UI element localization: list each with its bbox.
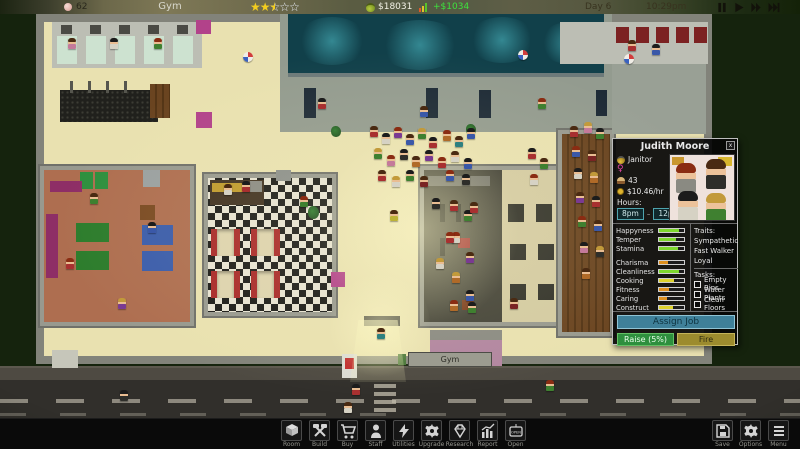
star-icon: ★ — [260, 0, 270, 14]
person-sprite[interactable] — [678, 191, 698, 221]
toolbar-button-label: Buy — [342, 441, 353, 449]
person-sprite[interactable] — [412, 156, 420, 167]
fire-button[interactable]: Fire — [677, 333, 735, 346]
beach-ball — [624, 54, 634, 64]
toolbar-button-label: Utilities — [392, 441, 415, 449]
stall-floor — [86, 36, 106, 64]
stat-label: Fitness — [616, 286, 658, 294]
wood-room — [562, 134, 610, 332]
stat-label: Construct — [616, 304, 658, 312]
menu-icon — [768, 420, 789, 441]
person-sprite[interactable] — [530, 174, 538, 185]
room-button[interactable]: Room — [279, 420, 304, 449]
toolbar-button-label: Report — [478, 441, 498, 449]
traits-label: Traits: — [694, 226, 738, 236]
person-sprite[interactable] — [224, 184, 232, 195]
menu-button[interactable]: Menu — [766, 420, 791, 449]
options-button[interactable]: Options — [738, 420, 763, 449]
person-sprite[interactable] — [148, 222, 156, 233]
person-sprite[interactable] — [510, 298, 518, 309]
locker-bench — [150, 84, 170, 118]
room-icon — [281, 420, 302, 441]
stat-row: Stamina — [616, 244, 688, 253]
counter — [46, 214, 58, 278]
day-counter: Day 6 — [585, 1, 611, 13]
road-lane-marking — [0, 413, 800, 416]
toolbar-button-label: Menu — [770, 441, 786, 449]
person-sprite[interactable] — [377, 328, 385, 339]
person-sprite[interactable] — [676, 163, 696, 193]
sidewalk — [0, 366, 800, 380]
person-sprite[interactable] — [596, 246, 604, 257]
person-sprite[interactable] — [443, 130, 451, 141]
toolbar-button-label: Room — [283, 441, 300, 449]
billboard-art — [345, 358, 354, 369]
person-sprite[interactable] — [466, 290, 474, 301]
person-sprite[interactable] — [652, 44, 660, 55]
options-icon — [740, 420, 761, 441]
build-icon — [309, 420, 330, 441]
stall-floor — [173, 36, 193, 64]
person-sprite[interactable] — [118, 298, 126, 309]
deck-bench — [479, 90, 491, 118]
games-room — [44, 170, 190, 322]
report-button[interactable]: Report — [475, 420, 500, 449]
person-sprite[interactable] — [596, 128, 604, 139]
upgrade-button[interactable]: Upgrade — [419, 420, 444, 449]
person-sprite[interactable] — [420, 176, 428, 187]
stat-row: Caring — [616, 294, 688, 303]
stat-row: Cooking — [616, 276, 688, 285]
side-table — [140, 205, 155, 220]
pause-button[interactable] — [716, 2, 728, 13]
janitor-icon — [617, 156, 625, 164]
bench-blue — [142, 225, 173, 245]
stat-row: Cleanliness — [616, 267, 688, 276]
toolbar-button-label: Build — [312, 441, 327, 449]
toolbar-button-label: Staff — [369, 441, 383, 449]
person-sprite[interactable] — [370, 126, 378, 137]
person-sprite[interactable] — [584, 122, 592, 133]
person-sprite[interactable] — [120, 390, 128, 401]
utilities-button[interactable]: Utilities — [391, 420, 416, 449]
person-sprite[interactable] — [446, 170, 454, 181]
person-sprite[interactable] — [590, 172, 598, 183]
shower-head — [61, 25, 72, 34]
gym-equipment — [440, 204, 445, 222]
person-sprite[interactable] — [394, 127, 402, 138]
person-sprite[interactable] — [352, 384, 360, 395]
staff-detail-panel: Judith Moore x Janitor ♀ 43 $10.46/hr Ho… — [612, 138, 738, 345]
person-sprite[interactable] — [418, 128, 426, 139]
guest-count-icon — [64, 3, 72, 11]
stall-door — [676, 27, 689, 43]
person-sprite[interactable] — [374, 148, 382, 159]
person-sprite[interactable] — [432, 198, 440, 209]
pool-edge — [288, 73, 604, 77]
person-sprite[interactable] — [572, 146, 580, 157]
station — [143, 170, 160, 187]
person-sprite[interactable] — [446, 232, 454, 243]
stat-label: Cooking — [616, 277, 658, 285]
person-sprite[interactable] — [378, 170, 386, 181]
stats-section: HappynessTemperStaminaCharismaCleanlines… — [613, 223, 737, 312]
stat-label: Cleanliness — [616, 268, 658, 276]
save-button[interactable]: Save — [710, 420, 735, 449]
raise-button[interactable]: Raise (5%) — [617, 333, 674, 346]
person-sprite[interactable] — [538, 98, 546, 109]
wage-icon — [617, 188, 624, 195]
plant — [331, 126, 341, 137]
crosswalk-dash — [374, 392, 396, 396]
income-chart-icon — [419, 3, 430, 12]
stat-row: Construct — [616, 303, 688, 312]
person-sprite[interactable] — [594, 220, 602, 231]
person-sprite[interactable] — [242, 181, 250, 192]
bottom-toolbar: RoomBuildBuyStaffUtilitiesUpgradeResearc… — [0, 418, 800, 449]
sauna-pole — [124, 81, 127, 93]
star-rating: ★★☆★☆☆ — [250, 0, 299, 14]
counter — [50, 181, 82, 192]
task-row: Clean Floors — [694, 299, 738, 309]
stat-label: Stamina — [616, 245, 658, 253]
person-sprite[interactable] — [406, 134, 414, 145]
trait-item: Sympathetic — [694, 236, 738, 246]
shower-head — [148, 25, 159, 34]
gym-equipment — [538, 244, 554, 260]
person-sprite[interactable] — [576, 192, 584, 203]
gym-equipment — [538, 284, 554, 300]
star-icon: ☆ — [289, 0, 299, 14]
pool-light — [378, 20, 462, 70]
lounger — [251, 229, 280, 256]
gym-equipment — [508, 204, 524, 222]
gym-name[interactable]: Gym — [140, 1, 200, 13]
person-sprite[interactable] — [318, 98, 326, 109]
sauna-pole — [70, 81, 73, 93]
vending-machine — [95, 172, 108, 189]
pool-light — [296, 17, 368, 65]
shed — [52, 350, 78, 368]
shower-head — [119, 25, 130, 34]
person-sprite[interactable] — [470, 202, 478, 213]
task-checkbox[interactable] — [694, 291, 701, 298]
hours-separator: – — [647, 210, 651, 219]
max-speed-button[interactable] — [768, 2, 780, 13]
staff-role: Janitor — [628, 155, 652, 164]
gym-lockers — [428, 176, 490, 186]
shelter-roof — [430, 330, 502, 340]
person-sprite[interactable] — [392, 176, 400, 187]
stat-row: Happyness — [616, 226, 688, 235]
toolbar-button-label: Open — [507, 441, 523, 449]
stat-bar — [658, 287, 685, 292]
stat-row: Fitness — [616, 285, 688, 294]
staff-portrait — [669, 154, 735, 221]
task-checkbox[interactable] — [694, 301, 701, 308]
lounger — [211, 229, 240, 256]
stat-bar — [658, 296, 685, 301]
stat-bar — [658, 237, 685, 242]
staff-wage: $10.46/hr — [627, 187, 664, 196]
fast-forward-button[interactable] — [750, 2, 762, 13]
person-sprite[interactable] — [438, 157, 446, 168]
trait-item: Fast Walker — [694, 246, 738, 256]
beach-ball — [243, 52, 253, 62]
crosswalk-dash — [374, 384, 396, 388]
stat-label: Charisma — [616, 259, 658, 267]
plant — [308, 206, 319, 219]
person-sprite[interactable] — [578, 216, 586, 227]
toolbar-button-label: Options — [739, 441, 762, 449]
person-sprite[interactable] — [588, 150, 596, 161]
game-screen: Gym 62 Gym ★★☆★☆☆ $18031 +$1034 Day 6 10… — [0, 0, 800, 449]
stat-bar — [658, 305, 685, 310]
person-sprite[interactable] — [420, 106, 428, 117]
person-sprite[interactable] — [390, 210, 398, 221]
person-sprite[interactable] — [90, 193, 98, 204]
person-sprite[interactable] — [450, 300, 458, 311]
person-sprite[interactable] — [464, 158, 472, 169]
person-sprite[interactable] — [467, 128, 475, 139]
task-label: Clean Floors — [704, 296, 738, 312]
open-button[interactable]: OPENOpen — [503, 420, 528, 449]
hours-label: Hours: — [617, 198, 642, 207]
shower-head — [177, 25, 188, 34]
person-sprite[interactable] — [406, 170, 414, 181]
door-pink — [196, 112, 212, 128]
stat-bar — [658, 246, 685, 251]
road-gym-sign: Gym — [408, 352, 492, 367]
buy-button[interactable]: Buy — [335, 420, 360, 449]
person-sprite[interactable] — [300, 196, 308, 207]
door-pink — [196, 20, 211, 34]
crosswalk-dash — [374, 408, 396, 412]
research-icon — [449, 420, 470, 441]
stall-floor — [115, 36, 135, 64]
money-icon — [366, 3, 375, 12]
pool-table — [76, 251, 109, 270]
person-sprite[interactable] — [592, 196, 600, 207]
lounger — [251, 271, 280, 298]
person-sprite[interactable] — [570, 126, 578, 137]
door-pink — [331, 272, 345, 287]
svg-text:OPEN: OPEN — [511, 430, 521, 434]
research-button[interactable]: Research — [447, 420, 472, 449]
stat-row: Charisma — [616, 258, 688, 267]
star-icon: ★ — [250, 0, 260, 14]
person-sprite[interactable] — [580, 242, 588, 253]
person-sprite[interactable] — [154, 38, 162, 49]
hall-zone — [612, 64, 706, 134]
person-sprite[interactable] — [628, 40, 636, 51]
stall-door — [656, 27, 669, 43]
person-sprite[interactable] — [574, 168, 582, 179]
stat-row: Temper — [616, 235, 688, 244]
person-sprite[interactable] — [706, 193, 726, 221]
utilities-icon — [393, 420, 414, 441]
person-sprite[interactable] — [382, 133, 390, 144]
assign-job-button[interactable]: Assign Job — [617, 315, 735, 329]
toolbar-button-label: Upgrade — [419, 441, 445, 449]
build-button[interactable]: Build — [307, 420, 332, 449]
person-sprite[interactable] — [468, 302, 476, 313]
bench-blue — [142, 251, 173, 271]
gym-equipment — [440, 238, 445, 256]
sauna-floor — [60, 90, 158, 122]
income-delta: +$1034 — [433, 1, 469, 13]
stat-bar — [658, 228, 685, 233]
upgrade-icon — [421, 420, 442, 441]
shift-start-button[interactable]: 8pm — [617, 208, 644, 220]
staff-age: 43 — [628, 176, 638, 185]
stat-bar — [658, 269, 685, 274]
buy-icon — [337, 420, 358, 441]
cafe-machine — [250, 181, 262, 192]
toolbar-button-label: Save — [715, 441, 730, 449]
stat-label: Caring — [616, 295, 658, 303]
open-icon: OPEN — [505, 420, 526, 441]
person-sprite[interactable] — [582, 268, 590, 279]
money-balance: $18031 — [378, 1, 412, 13]
deck-bench — [596, 90, 607, 116]
person-sprite[interactable] — [425, 150, 433, 161]
person-sprite[interactable] — [546, 380, 554, 391]
clock-time: 10:29pm — [646, 1, 686, 13]
person-sprite[interactable] — [455, 136, 463, 147]
play-button[interactable] — [733, 2, 745, 13]
trait-item: Loyal — [694, 256, 738, 266]
gym-equipment — [510, 244, 526, 260]
person-sprite[interactable] — [451, 151, 459, 162]
person-sprite[interactable] — [344, 402, 352, 413]
beach-ball — [518, 50, 528, 60]
sink — [276, 170, 291, 181]
report-icon — [477, 420, 498, 441]
female-icon: ♀ — [617, 165, 624, 174]
sauna-pole — [106, 81, 109, 93]
person-sprite[interactable] — [706, 159, 726, 189]
stat-bar — [658, 278, 685, 283]
person-sprite[interactable] — [68, 38, 76, 49]
staff-button[interactable]: Staff — [363, 420, 388, 449]
crosswalk-dash — [374, 400, 396, 404]
deck-bench — [304, 88, 316, 118]
stall-door — [636, 27, 649, 43]
entrance-doors — [364, 316, 400, 326]
age-icon — [617, 177, 625, 184]
top-hud-bar: 62 Gym ★★☆★☆☆ $18031 +$1034 Day 6 10:29p… — [0, 0, 800, 14]
gym-equipment — [536, 204, 552, 222]
toolbar-button-label: Research — [446, 441, 474, 449]
person-sprite[interactable] — [462, 174, 470, 185]
stall-door — [694, 27, 707, 43]
close-icon[interactable]: x — [726, 141, 735, 150]
star-icon: ☆ — [279, 0, 289, 14]
person-sprite[interactable] — [66, 258, 74, 269]
person-sprite[interactable] — [528, 148, 536, 159]
staff-name: Judith Moore — [613, 141, 737, 152]
person-sprite[interactable] — [429, 137, 437, 148]
stat-bar — [658, 260, 685, 265]
person-sprite[interactable] — [110, 38, 118, 49]
pool-table — [76, 223, 109, 242]
task-checkbox[interactable] — [694, 281, 701, 288]
shower-head — [90, 25, 101, 34]
person-sprite[interactable] — [436, 258, 444, 269]
stat-label: Happyness — [616, 227, 658, 235]
sauna-pole — [88, 81, 91, 93]
star-icon: ☆★ — [270, 0, 280, 14]
person-sprite[interactable] — [387, 155, 395, 166]
stat-label: Temper — [616, 236, 658, 244]
person-sprite[interactable] — [466, 252, 474, 263]
person-sprite[interactable] — [540, 158, 548, 169]
person-sprite[interactable] — [452, 272, 460, 283]
person-sprite[interactable] — [450, 200, 458, 211]
lounger — [211, 271, 240, 298]
guest-count: 62 — [76, 1, 87, 13]
save-icon — [712, 420, 733, 441]
sign-post — [398, 354, 406, 365]
staff-icon — [365, 420, 386, 441]
person-sprite[interactable] — [400, 149, 408, 160]
